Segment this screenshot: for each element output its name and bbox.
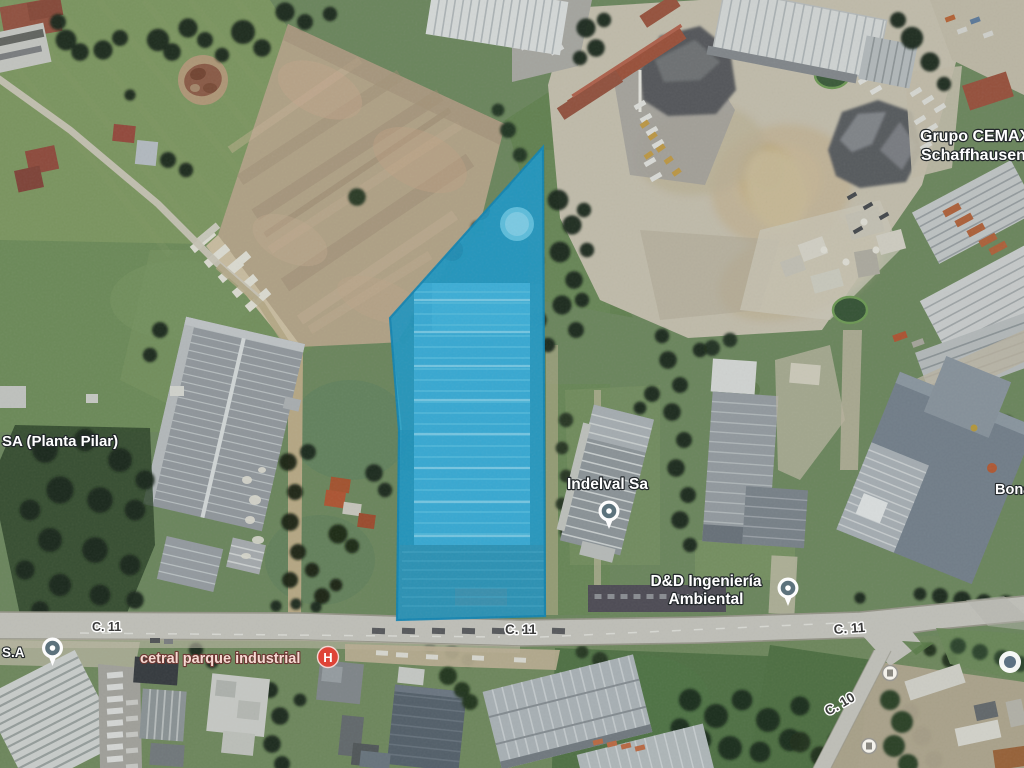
svg-text:Bona: Bona — [995, 482, 1024, 498]
svg-text:S.A: S.A — [2, 645, 25, 660]
svg-text:C. 11: C. 11 — [833, 620, 866, 637]
svg-text:D&D Ingeniería: D&D Ingeniería — [650, 573, 761, 590]
svg-text:H: H — [323, 650, 332, 665]
svg-text:cetral parque industrial: cetral parque industrial — [140, 651, 300, 667]
svg-text:Grupo CEMAX: Grupo CEMAX — [920, 128, 1024, 145]
svg-text:Schaffhausen: Schaffhausen — [921, 147, 1024, 164]
svg-text:SA (Planta Pilar): SA (Planta Pilar) — [2, 433, 118, 450]
svg-text:Indelval Sa: Indelval Sa — [567, 476, 648, 493]
svg-text:C. 11: C. 11 — [92, 620, 121, 634]
svg-text:C. 11: C. 11 — [505, 622, 537, 637]
svg-text:Ambiental: Ambiental — [669, 591, 744, 608]
